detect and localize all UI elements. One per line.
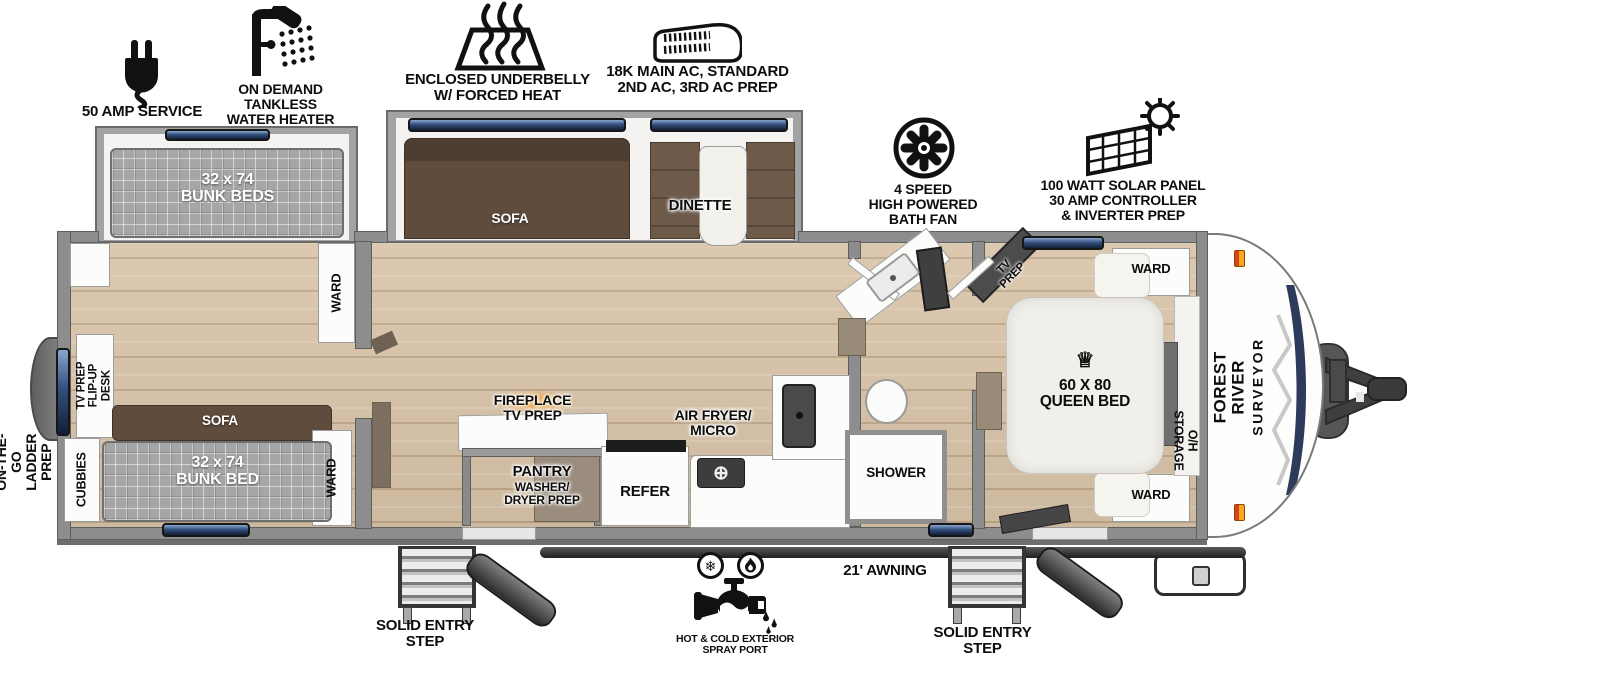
desk-frame-left-leg [462, 450, 471, 526]
cubbies-label: CUBBIES [58, 438, 106, 522]
queen-bed-label: 60 X 80 QUEEN BED [1027, 378, 1143, 411]
refrigerator-top [606, 440, 686, 452]
dinette-bench-left [650, 142, 700, 239]
cooktop: ⊕ [697, 458, 745, 488]
entry-threshold-left [462, 527, 536, 540]
bunk-bed-label: 32 x 74 BUNK BED [150, 455, 285, 489]
cap-trim-top [1258, 233, 1324, 275]
spray-port-label: HOT & COLD EXTERIOR SPRAY PORT [655, 634, 815, 656]
entry-threshold-right [1032, 527, 1108, 540]
bath-fan-icon [892, 116, 956, 180]
pantry-sub-label: WASHER/ DRYER PREP [472, 481, 612, 506]
ladder-prep-label: ON-THE-GO LADDER PREP [0, 388, 54, 536]
amp-service-label: 50 AMP SERVICE [57, 104, 227, 120]
bunkroom-door-open [372, 402, 391, 488]
bath-sink-faucet [890, 275, 896, 281]
rear-wall-window [56, 348, 70, 436]
kitchen-faucet [796, 412, 803, 419]
entry-step-left-label: SOLID ENTRY STEP [350, 618, 500, 650]
shower-bottom-window [928, 523, 974, 537]
bunkroom-ward-top-label: WARD [312, 243, 360, 343]
spray-port-faucet-icon [692, 576, 784, 634]
bunkroom-ward-bottom-label: WARD [306, 430, 356, 526]
entry-step-right [948, 546, 1026, 608]
queen-crown-icon: ♕ [1035, 350, 1135, 372]
oh-storage-label: O/H STORAGE [1168, 345, 1202, 535]
dinette-table [699, 146, 747, 246]
dinette-label: DINETTE [645, 198, 755, 214]
bunk-slide-window [165, 129, 270, 141]
dinette-bench-right [746, 142, 795, 239]
brand-model: SURVEYOR [1242, 284, 1274, 490]
burner-icon: ⊕ [713, 464, 729, 483]
marker-light-top [1234, 250, 1245, 267]
bath-wall-top-stub [848, 241, 861, 259]
cold-snowflake-icon: ❄ [697, 552, 724, 579]
fireplace-label: FIREPLACE TV PREP [460, 393, 605, 423]
awning-bar [540, 547, 1246, 558]
bunkroom-corner-shelf [70, 243, 110, 287]
pantry-title-label: PANTRY [472, 464, 612, 480]
refer-label: REFER [601, 484, 689, 500]
toilet [865, 379, 908, 424]
entry-step-right-foot1 [953, 607, 962, 624]
shower-head-icon [250, 6, 316, 80]
hot-flame-icon [737, 552, 764, 579]
bedroom-ward-top-label: WARD [1112, 262, 1190, 276]
bath-shelf [838, 318, 866, 356]
marker-light-bottom [1234, 504, 1245, 521]
solar-panel-icon [1082, 98, 1182, 182]
bunkroom-wall-lower [355, 418, 372, 529]
sofa-slide-window [408, 118, 626, 132]
underbelly-label: ENCLOSED UNDERBELLY W/ FORCED HEAT [405, 72, 590, 104]
ac-unit-icon [650, 22, 742, 68]
power-plug-icon [118, 34, 164, 108]
tv-prep-desk-label: TV PREP FLIP-UP DESK [70, 332, 118, 440]
dinette-slide-window [650, 118, 788, 132]
slide-sofa-label: SOFA [440, 211, 580, 226]
awning-label: 21' AWNING [815, 563, 955, 579]
baggage-door-latch [1192, 566, 1210, 586]
entry-step-right-label: SOLID ENTRY STEP [905, 625, 1060, 657]
bunkroom-sofa-label: SOFA [150, 414, 290, 428]
ac-label: 18K MAIN AC, STANDARD 2ND AC, 3RD AC PRE… [590, 64, 805, 96]
bunkroom-bottom-window [162, 523, 250, 537]
entry-step-left [398, 546, 476, 608]
bedroom-cabinet [976, 372, 1002, 430]
rv-floorplan: 50 AMP SERVICE ON DEMAND TANKLESS WATER … [0, 0, 1600, 681]
water-heater-label: ON DEMAND TANKLESS WATER HEATER [218, 82, 343, 126]
forced-heat-icon [452, 0, 548, 72]
air-fryer-label: AIR FRYER/ MICRO [648, 408, 778, 438]
frame-rail [57, 540, 1207, 545]
bunk-beds-label: 32 x 74 BUNK BEDS [160, 172, 295, 206]
bath-fan-label: 4 SPEED HIGH POWERED BATH FAN [858, 182, 988, 226]
bedroom-top-window [1022, 236, 1104, 250]
entry-step-right-foot2 [1012, 607, 1021, 624]
shower-label: SHOWER [848, 466, 944, 480]
solar-label: 100 WATT SOLAR PANEL 30 AMP CONTROLLER &… [1018, 178, 1228, 222]
